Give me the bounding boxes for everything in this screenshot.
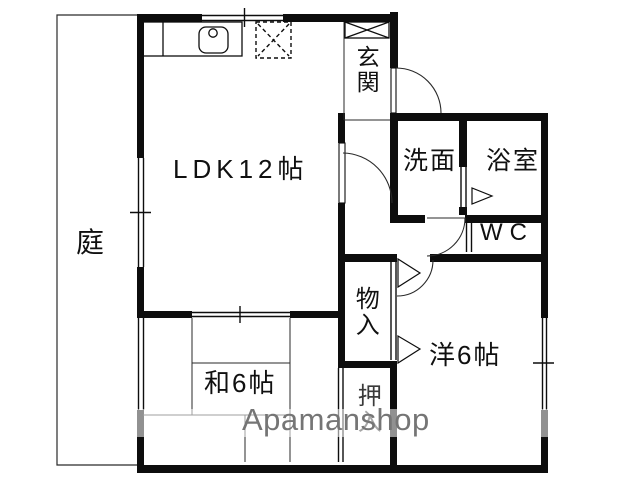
ldk-hall-door-arc xyxy=(343,153,392,203)
monoiri-door-triangle xyxy=(398,336,420,363)
kitchen-counter xyxy=(143,22,242,56)
watermark-text: Apamanshop xyxy=(242,402,430,438)
bathroom-door-triangle xyxy=(472,188,492,204)
room-label-washroom: 洗面 xyxy=(403,148,457,174)
kitchen-sink xyxy=(199,27,228,53)
room-label-wc: WC xyxy=(480,220,534,245)
room-label-storage: 物入 xyxy=(352,286,377,338)
floor-plan-page: 庭 LDK12帖 玄関 洗面 浴室 WC 物入 洋6帖 和6帖 押入 Apama… xyxy=(0,0,640,480)
entrance-door-arc xyxy=(396,68,441,113)
room-label-garden: 庭 xyxy=(76,228,104,257)
ldk-hall-door-leaf xyxy=(339,143,345,203)
room-label-japanese-room: 和6帖 xyxy=(204,370,276,397)
room-label-western-room: 洋6帖 xyxy=(429,342,501,369)
kitchen-fixtures xyxy=(143,22,242,56)
entrance-door-leaf xyxy=(391,68,396,113)
washroom-door-arc xyxy=(427,218,465,256)
shoe-cabinet xyxy=(345,22,389,38)
door-triangles xyxy=(398,188,492,363)
room-label-bathroom: 浴室 xyxy=(486,148,540,174)
room-label-ldk: LDK12帖 xyxy=(173,156,309,183)
faucet-icon xyxy=(209,29,217,37)
room-label-genkan: 玄関 xyxy=(354,45,378,95)
monoiri-door-triangle xyxy=(398,259,420,287)
stove-dashed-box xyxy=(256,22,291,58)
